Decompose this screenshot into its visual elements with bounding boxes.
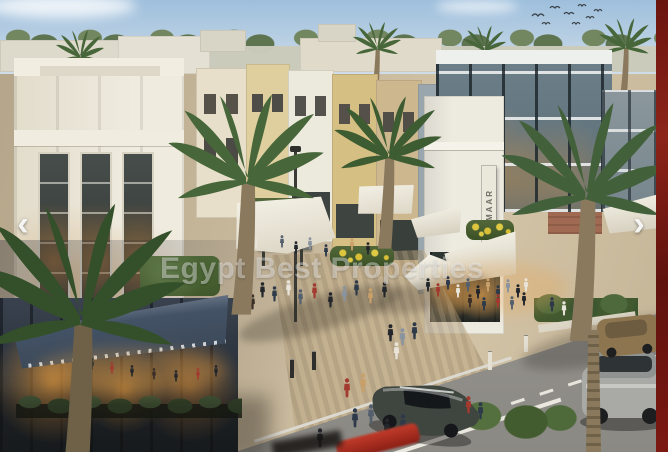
bollard xyxy=(524,336,528,352)
terrace-hedge-railing xyxy=(16,392,242,418)
carousel-next-button[interactable]: › xyxy=(624,206,654,242)
emaar-building-cornice xyxy=(424,142,504,150)
shop-facade-gold xyxy=(332,74,378,256)
palm-trunk xyxy=(586,330,601,452)
watermark: Egypt Best Properties xyxy=(160,252,484,286)
roof-bulkhead xyxy=(318,24,356,42)
roof-bulkhead xyxy=(200,30,246,52)
listing-photo: EMAAR xyxy=(0,0,668,452)
cloud xyxy=(436,0,518,13)
background-building xyxy=(300,38,442,72)
glass-building-wing xyxy=(602,90,658,212)
bollard xyxy=(290,360,294,378)
bollard xyxy=(488,352,492,370)
lamp-head xyxy=(290,146,301,152)
street-bush xyxy=(456,388,578,452)
bollard xyxy=(312,352,316,370)
right-edge-red-strip xyxy=(656,0,668,452)
left-building-frieze xyxy=(14,130,184,146)
left-building-roof-step xyxy=(40,66,160,76)
left-building-window xyxy=(40,154,68,304)
glass-building-fascia xyxy=(436,50,612,64)
shop-facade-cream xyxy=(196,68,248,218)
left-building-window xyxy=(82,154,110,304)
carousel-prev-button[interactable]: ‹ xyxy=(8,206,38,242)
